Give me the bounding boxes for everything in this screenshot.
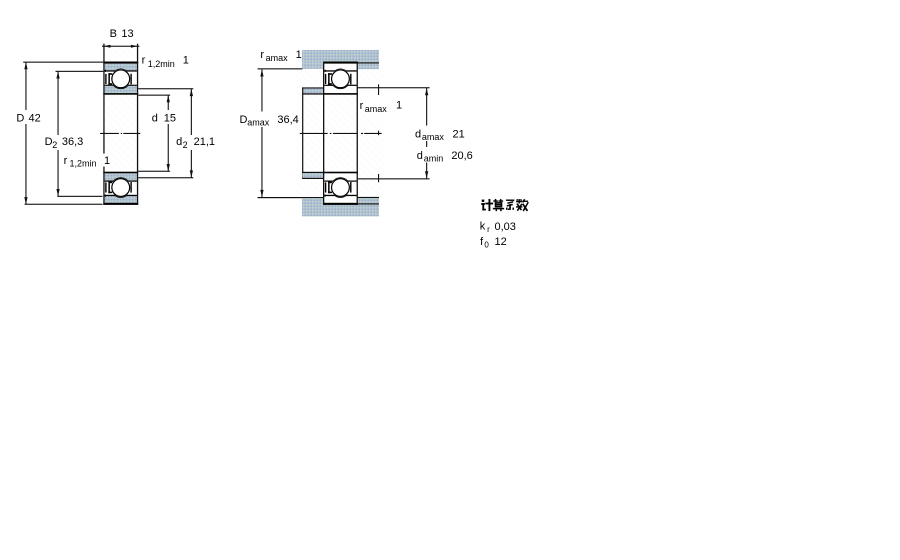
svg-text:20,6: 20,6 bbox=[451, 150, 472, 162]
svg-text:r: r bbox=[360, 100, 364, 112]
svg-text:36,4: 36,4 bbox=[277, 114, 298, 126]
svg-text:D: D bbox=[16, 113, 24, 125]
svg-text:1: 1 bbox=[396, 100, 402, 112]
svg-text:amin: amin bbox=[424, 153, 444, 163]
svg-text:1: 1 bbox=[104, 155, 110, 167]
svg-text:d: d bbox=[417, 150, 423, 162]
svg-text:d: d bbox=[415, 128, 421, 140]
svg-text:0: 0 bbox=[484, 241, 489, 250]
svg-text:2: 2 bbox=[183, 140, 188, 150]
svg-text:36,3: 36,3 bbox=[62, 136, 83, 148]
svg-text:amax: amax bbox=[365, 104, 388, 114]
svg-text:B: B bbox=[110, 28, 117, 40]
svg-text:amax: amax bbox=[247, 118, 270, 128]
svg-text:r: r bbox=[487, 225, 490, 234]
svg-text:amax: amax bbox=[422, 132, 445, 142]
svg-text:k: k bbox=[480, 221, 486, 233]
svg-text:21: 21 bbox=[453, 128, 465, 140]
svg-text:0,03: 0,03 bbox=[495, 221, 516, 233]
svg-text:12: 12 bbox=[495, 236, 507, 248]
svg-text:1,2min: 1,2min bbox=[70, 159, 97, 169]
svg-text:d: d bbox=[152, 113, 158, 125]
svg-text:r: r bbox=[142, 55, 146, 67]
svg-text:42: 42 bbox=[29, 113, 41, 125]
svg-text:13: 13 bbox=[121, 28, 133, 40]
svg-text:21,1: 21,1 bbox=[194, 136, 215, 148]
svg-text:1: 1 bbox=[183, 54, 189, 66]
svg-text:15: 15 bbox=[164, 113, 176, 125]
svg-text:1,2min: 1,2min bbox=[148, 59, 175, 69]
svg-text:r: r bbox=[260, 49, 264, 61]
svg-text:d: d bbox=[176, 136, 182, 148]
svg-text:1: 1 bbox=[296, 49, 302, 61]
svg-text:r: r bbox=[64, 155, 68, 167]
svg-text:2: 2 bbox=[52, 140, 57, 150]
svg-text:amax: amax bbox=[266, 53, 289, 63]
